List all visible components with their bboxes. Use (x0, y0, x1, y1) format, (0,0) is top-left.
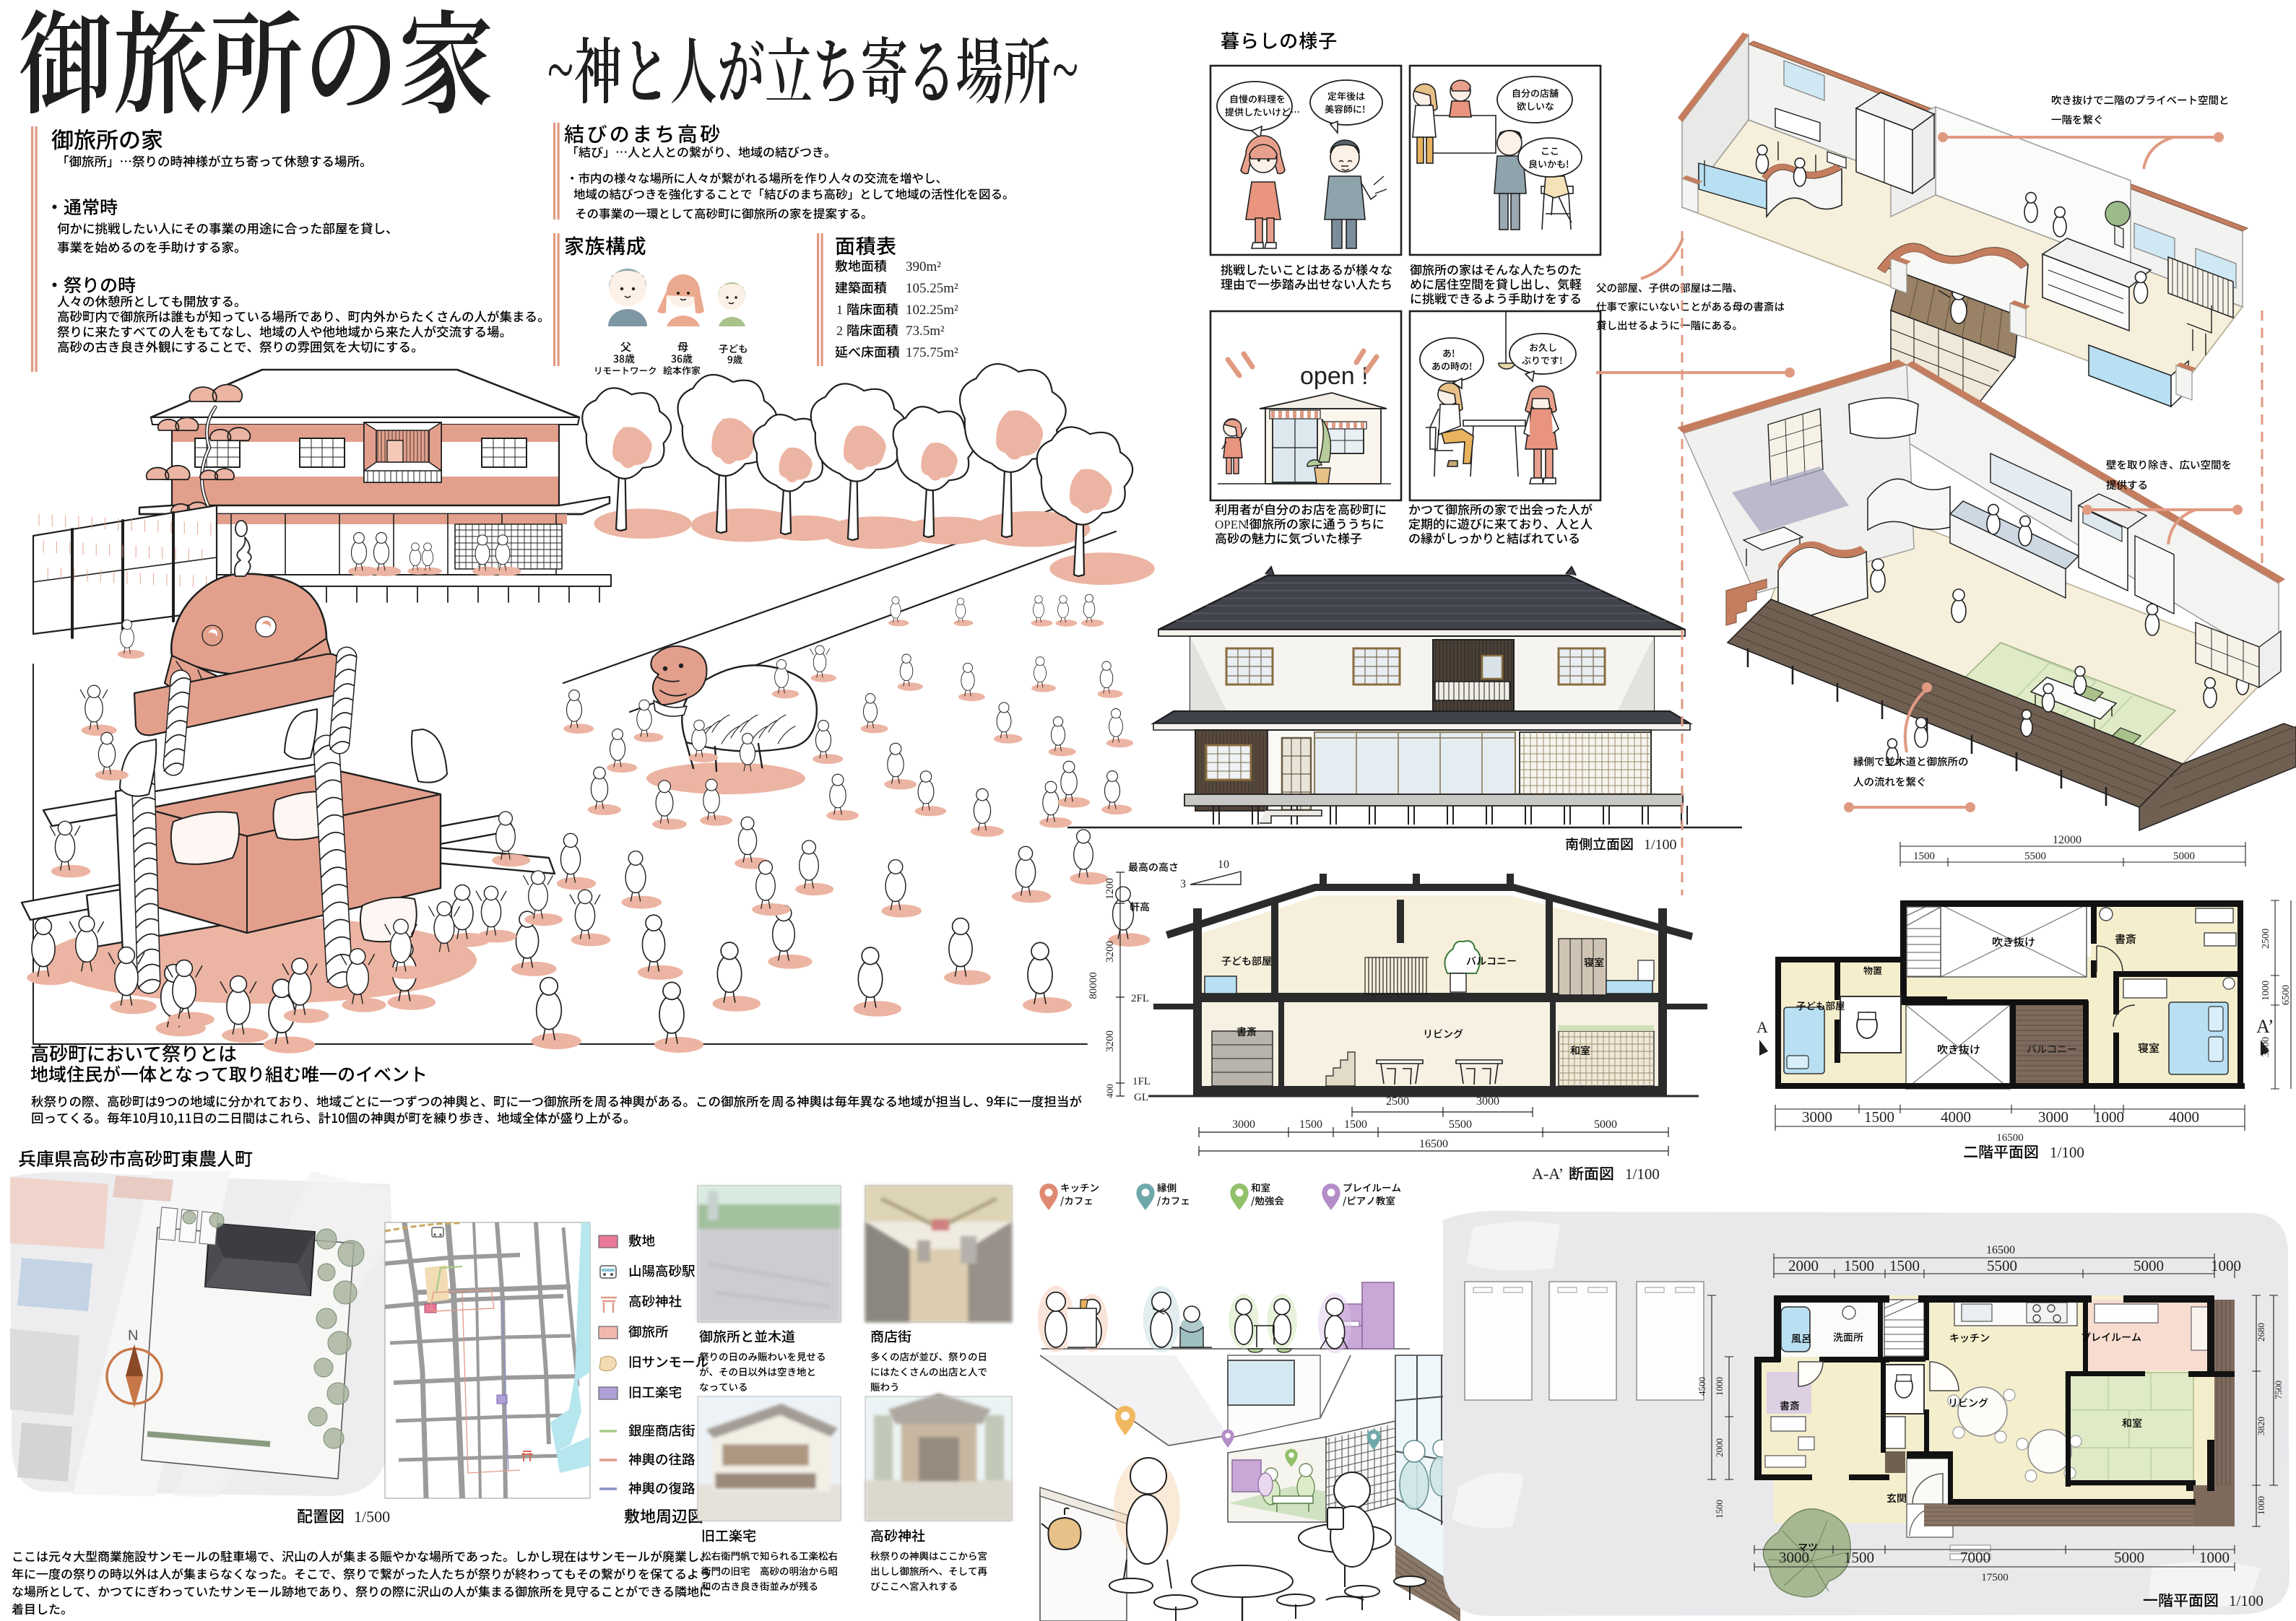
svg-text:1FL: 1FL (1132, 1076, 1151, 1087)
svg-text:1500: 1500 (1344, 1118, 1367, 1131)
svg-text:1500: 1500 (1714, 1500, 1725, 1518)
svg-text:102.25m²: 102.25m² (906, 303, 958, 318)
svg-text:2500: 2500 (2261, 929, 2271, 949)
svg-text:1/100: 1/100 (1625, 1165, 1660, 1183)
svg-text:1500: 1500 (1844, 1549, 1874, 1566)
svg-text:3000: 3000 (1476, 1095, 1499, 1108)
svg-text:390m²: 390m² (906, 259, 941, 274)
svg-text:12000: 12000 (2053, 834, 2081, 846)
svg-text:5000: 5000 (2133, 1257, 2164, 1274)
svg-text:7500: 7500 (2273, 1381, 2284, 1399)
svg-text:GL: GL (1134, 1092, 1148, 1103)
svg-text:80000: 80000 (1088, 972, 1099, 999)
svg-text:2000: 2000 (1788, 1257, 1819, 1274)
svg-text:105.25m²: 105.25m² (906, 281, 958, 296)
svg-text:16500: 16500 (1996, 1132, 2024, 1144)
svg-text:4500: 4500 (1697, 1377, 1707, 1396)
svg-text:1500: 1500 (1864, 1108, 1894, 1126)
svg-text:1: 1 (836, 303, 843, 317)
svg-text:1000: 1000 (2211, 1257, 2241, 1274)
svg-text:1/100: 1/100 (2050, 1144, 2084, 1161)
svg-text:5000: 5000 (2173, 851, 2195, 862)
svg-text:1000: 1000 (1714, 1377, 1725, 1396)
svg-text:1000: 1000 (2256, 1496, 2266, 1515)
svg-text:175.75m²: 175.75m² (906, 345, 958, 360)
svg-text:6500: 6500 (2281, 985, 2292, 1005)
svg-text:open !: open ! (1300, 362, 1369, 390)
svg-text:3000: 3000 (1779, 1549, 1809, 1566)
svg-text:1500: 1500 (1299, 1118, 1322, 1131)
svg-text:1500: 1500 (1889, 1257, 1920, 1274)
svg-text:16500: 16500 (1419, 1138, 1448, 1150)
svg-text:5000: 5000 (1594, 1118, 1617, 1131)
svg-text:7000: 7000 (1960, 1549, 1990, 1566)
svg-text:N: N (128, 1328, 138, 1344)
svg-text:1000: 1000 (2199, 1549, 2230, 1566)
svg-text:5500: 5500 (1987, 1257, 2017, 1274)
svg-text:A’: A’ (2256, 1016, 2274, 1037)
svg-text:1000: 1000 (2261, 981, 2271, 1001)
svg-text:400: 400 (1104, 1084, 1115, 1098)
svg-text:1/100: 1/100 (2229, 1592, 2263, 1609)
svg-text:2500: 2500 (1386, 1095, 1409, 1108)
svg-text:2: 2 (836, 323, 843, 338)
svg-text:3000: 3000 (1802, 1108, 1832, 1126)
svg-text:OPEN: OPEN (1215, 518, 1247, 531)
svg-text:4000: 4000 (1941, 1108, 1971, 1126)
svg-text:1/100: 1/100 (1644, 837, 1677, 853)
svg-text:2FL: 2FL (1131, 993, 1149, 1004)
svg-text:3820: 3820 (2256, 1417, 2266, 1435)
svg-text:3200: 3200 (1104, 941, 1116, 962)
svg-text:A: A (1756, 1018, 1768, 1036)
svg-text:10: 10 (1218, 859, 1229, 871)
svg-text:1200: 1200 (1104, 878, 1116, 900)
svg-text:3000: 3000 (1232, 1118, 1255, 1131)
svg-text:1000: 1000 (2094, 1108, 2124, 1126)
svg-text:4000: 4000 (2169, 1108, 2199, 1126)
svg-text:5500: 5500 (1449, 1118, 1472, 1131)
svg-text:3: 3 (1180, 878, 1186, 890)
svg-text:2680: 2680 (2256, 1323, 2266, 1342)
svg-text:16500: 16500 (1986, 1244, 2015, 1256)
svg-text:3000: 3000 (2038, 1108, 2068, 1126)
svg-text:1500: 1500 (1913, 851, 1935, 862)
svg-text:17500: 17500 (1981, 1572, 2009, 1583)
svg-text:5000: 5000 (2114, 1549, 2144, 1566)
svg-text:3200: 3200 (1104, 1030, 1116, 1052)
svg-text:1/500: 1/500 (354, 1508, 390, 1526)
svg-text:2000: 2000 (1714, 1438, 1725, 1457)
svg-text:A-A’: A-A’ (1532, 1165, 1564, 1183)
svg-text:73.5m²: 73.5m² (906, 323, 945, 339)
svg-text:5500: 5500 (2024, 851, 2046, 862)
svg-text:1500: 1500 (1844, 1257, 1874, 1274)
